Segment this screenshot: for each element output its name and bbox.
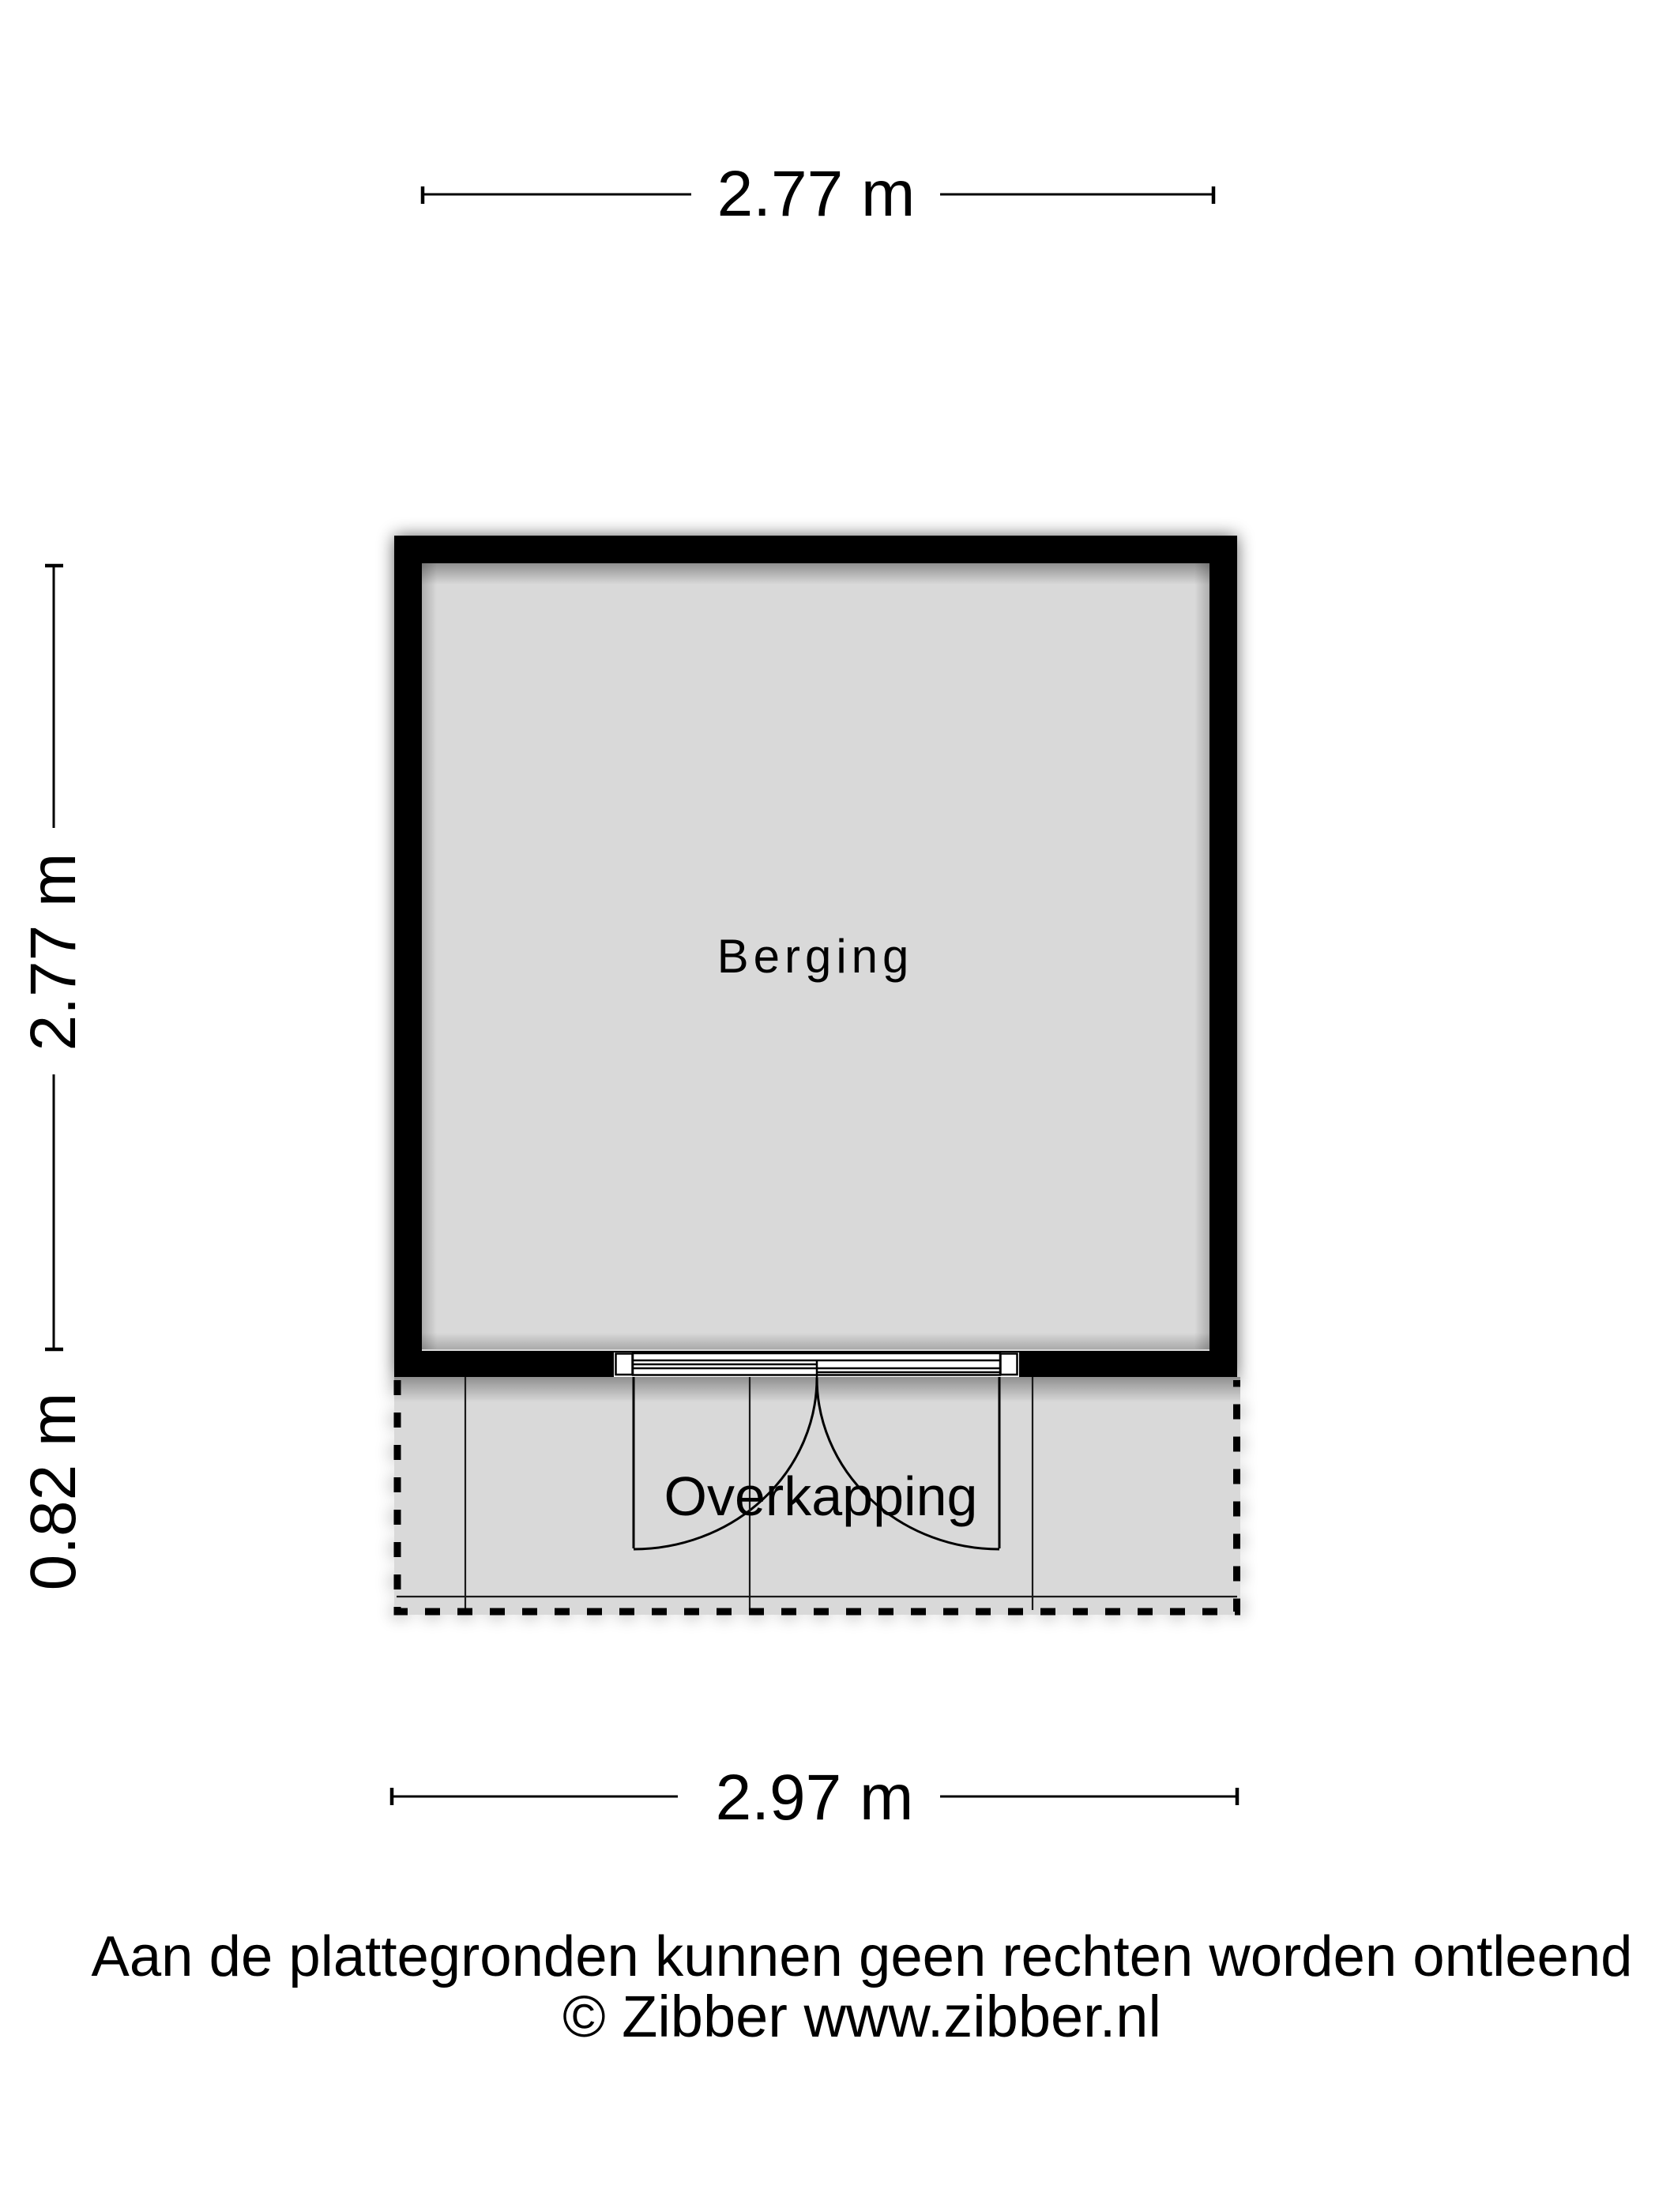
svg-text:2.97 m: 2.97 m	[716, 1762, 914, 1834]
svg-text:2.77 m: 2.77 m	[717, 158, 916, 230]
svg-text:Overkapping: Overkapping	[664, 1465, 978, 1527]
svg-text:2.77 m: 2.77 m	[17, 853, 89, 1051]
svg-text:Berging: Berging	[717, 930, 914, 983]
svg-text:© Zibber www.zibber.nl: © Zibber www.zibber.nl	[562, 1984, 1161, 2049]
svg-text:Aan de plattegronden kunnen ge: Aan de plattegronden kunnen geen rechten…	[92, 1924, 1633, 1988]
svg-text:0.82 m: 0.82 m	[17, 1393, 89, 1591]
